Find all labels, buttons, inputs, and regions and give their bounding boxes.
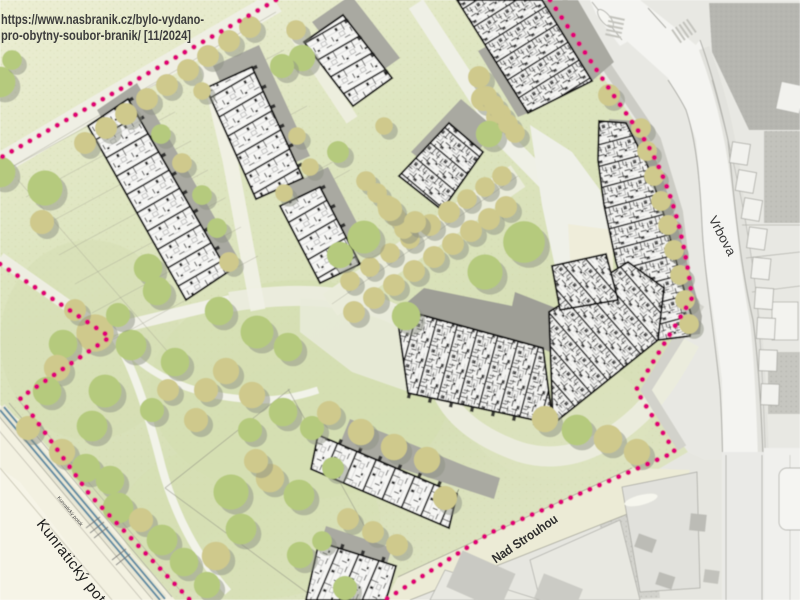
svg-text:https://www.nasbranik.cz/bylo-: https://www.nasbranik.cz/bylo-vydano- bbox=[1, 12, 204, 27]
svg-text:pro-obytny-soubor-branik/ [11/: pro-obytny-soubor-branik/ [11/2024] bbox=[1, 28, 191, 43]
